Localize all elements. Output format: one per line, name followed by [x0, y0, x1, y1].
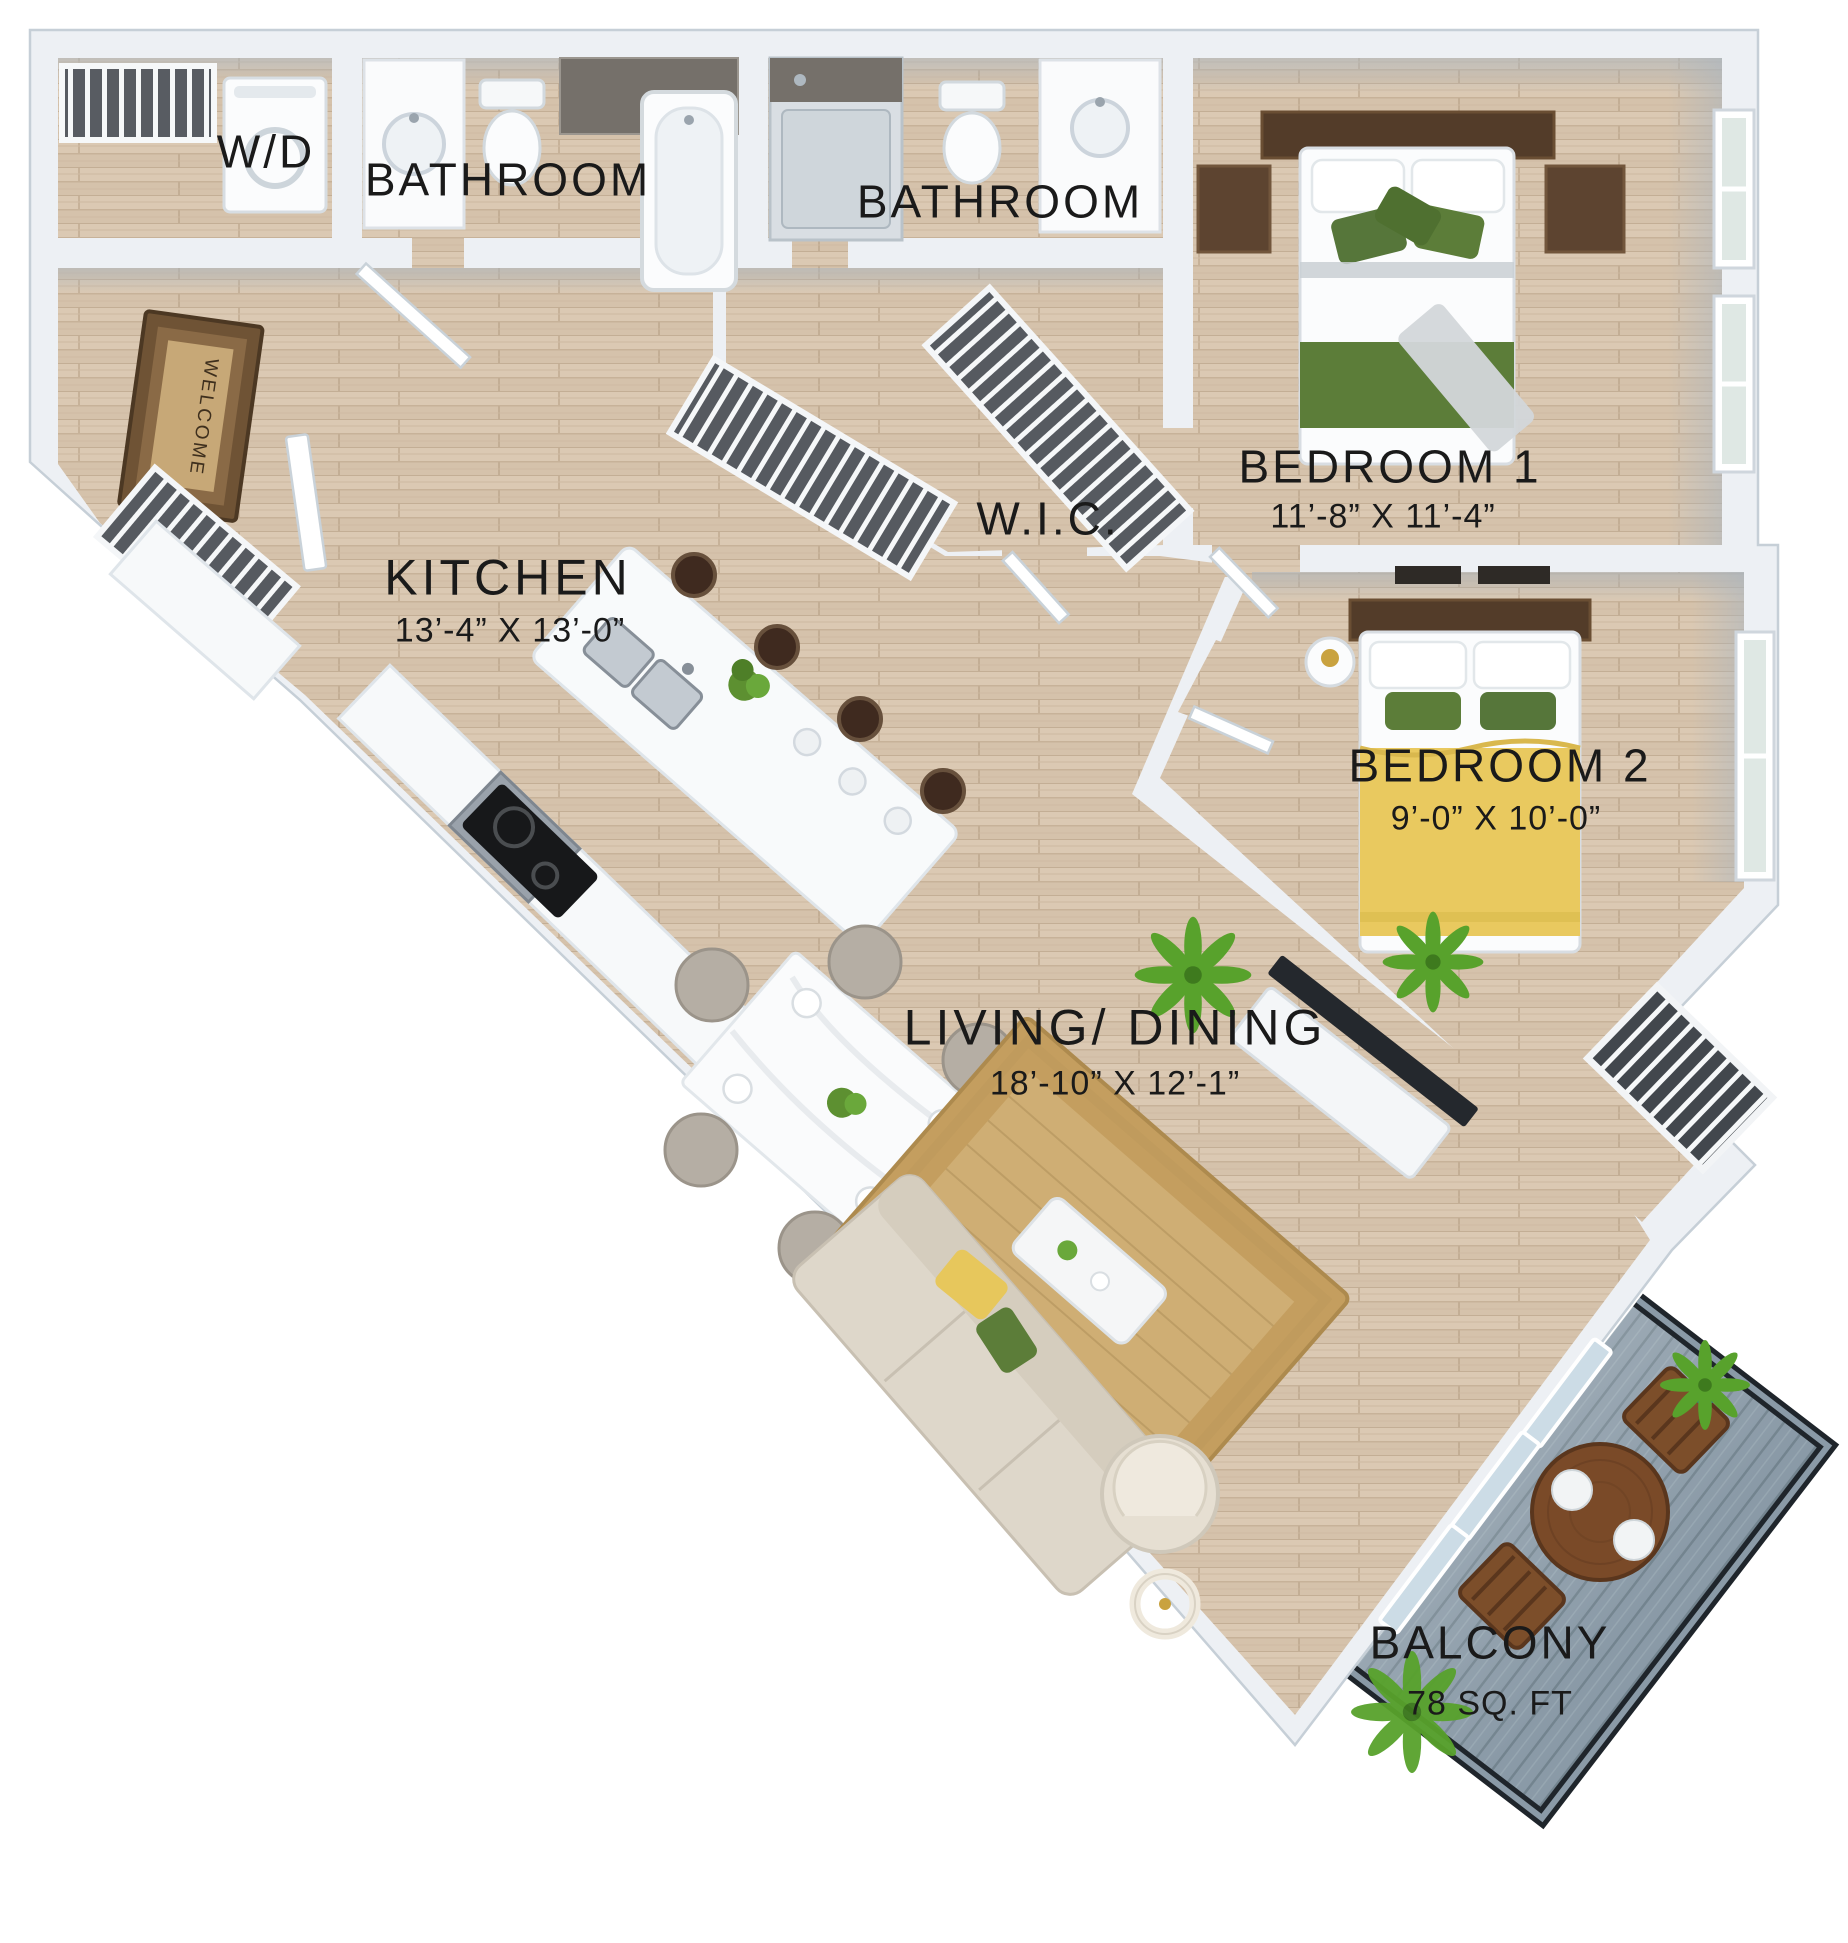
bar-stool [673, 554, 715, 596]
label-kitchen: KITCHEN [384, 551, 631, 606]
pillow [1370, 642, 1466, 688]
bedroom1-window [1714, 110, 1754, 268]
balcony-table [1532, 1444, 1668, 1580]
bedroom1-window [1714, 296, 1754, 472]
wall-art [1478, 566, 1550, 584]
bathtub [642, 92, 736, 290]
dims-bedroom1: 11’-8” X 11’-4” [1270, 498, 1495, 535]
toilet [940, 82, 1004, 183]
plant [1383, 912, 1484, 1013]
bedroom2-window [1736, 632, 1774, 880]
label-living: LIVING/ DINING [904, 1001, 1327, 1056]
dining-chair [665, 1114, 737, 1186]
label-wd: W/D [217, 127, 315, 178]
bed1 [1300, 148, 1537, 464]
dims-living: 18’-10” X 12’-1” [990, 1065, 1240, 1102]
accent-pillow [1385, 692, 1461, 730]
nightstand [1546, 166, 1624, 252]
label-balcony: BALCONY [1370, 1618, 1611, 1669]
plate [1614, 1520, 1654, 1560]
label-wic: W.I.C. [976, 494, 1119, 545]
wall-art [1395, 566, 1461, 584]
bed2 [1360, 632, 1580, 952]
dims-balcony: 78 SQ. FT [1407, 1685, 1573, 1722]
dining-chair [676, 949, 748, 1021]
armchair [1102, 1436, 1218, 1552]
dining-chair [829, 926, 901, 998]
wire-shelf [62, 66, 214, 140]
label-bathroom1: BATHROOM [365, 155, 651, 206]
door-gap [412, 236, 464, 272]
nightstand [1198, 166, 1270, 252]
dims-kitchen: 13’-4” X 13’-0” [395, 612, 625, 649]
balcony-plant [1660, 1340, 1750, 1430]
pillow [1474, 642, 1570, 688]
bar-stool [839, 698, 881, 740]
label-bedroom2: BEDROOM 2 [1348, 741, 1651, 792]
bar-stool [922, 770, 964, 812]
plate [1552, 1470, 1592, 1510]
label-bedroom1: BEDROOM 1 [1238, 442, 1541, 493]
bedside-table [1306, 638, 1354, 686]
accent-pillow [1480, 692, 1556, 730]
dims-bedroom2: 9’-0” X 10’-0” [1391, 800, 1602, 837]
label-bathroom2: BATHROOM [857, 177, 1143, 228]
floorplan: WELCOME [0, 0, 1848, 1943]
bar-stool [756, 626, 798, 668]
